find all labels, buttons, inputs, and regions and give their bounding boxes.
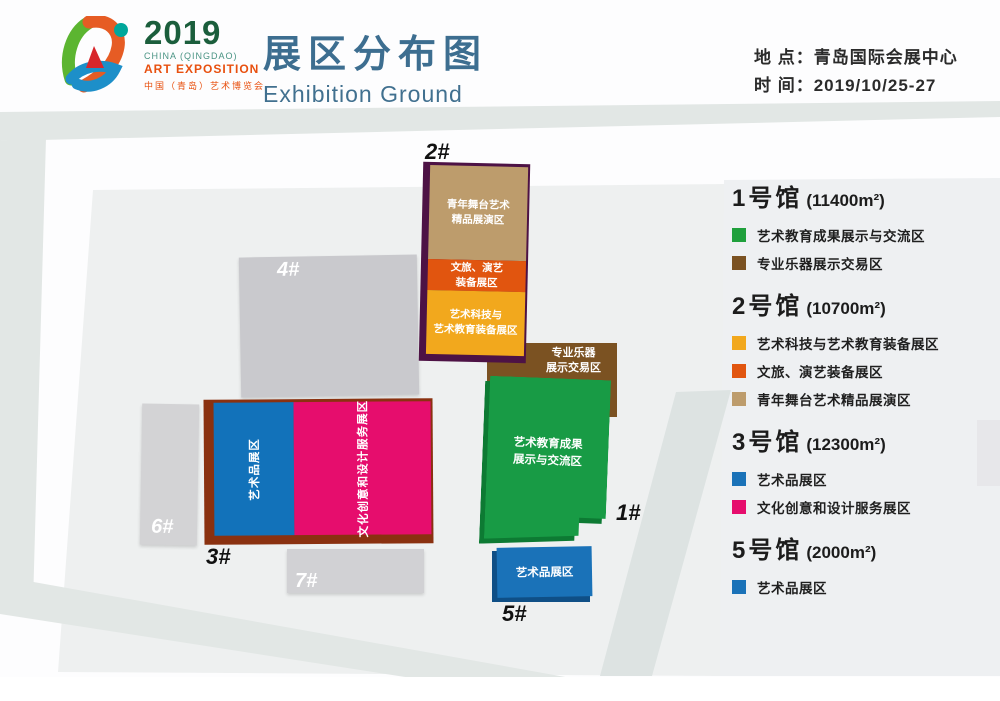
legend-item: 艺术品展区 — [732, 578, 994, 596]
legend-item: 艺术科技与艺术教育装备展区 — [732, 334, 994, 352]
legend-hall-1-title: 1号馆(11400m²) — [732, 184, 994, 216]
logo-year: 2019 — [144, 16, 265, 50]
hall-4-building: 4# — [239, 254, 419, 397]
hall-1-zone-label: 艺术教育成果 展示与交流区 — [487, 434, 609, 473]
hall-3-zone-creative-design-label: 文化创意和设计服务展区 — [354, 399, 371, 537]
blue-swatch-icon — [732, 472, 746, 486]
hall-2-zone-art-tech: 艺术科技与 艺术教育装备展区 — [426, 290, 525, 356]
hall-6-building: 6# — [140, 404, 199, 546]
legend-item: 文旅、演艺装备展区 — [732, 362, 994, 380]
hall-5-zone-label: 艺术品展区 — [516, 563, 574, 580]
event-time: 时 间：2019/10/25-27 — [754, 72, 958, 100]
hall-3-zone-artworks: 艺术品展区 — [214, 402, 294, 536]
hall-2-zone-culture-tourism-label: 文旅、演艺 装备展区 — [450, 260, 503, 291]
hall-3-zone-creative-design: 文化创意和设计服务展区 — [293, 401, 431, 535]
legend-item: 艺术品展区 — [732, 470, 994, 488]
legend-item: 艺术教育成果展示与交流区 — [732, 226, 994, 244]
yellow-swatch-icon — [732, 336, 746, 350]
hall-2-zone-art-tech-label: 艺术科技与 艺术教育装备展区 — [433, 307, 518, 338]
legend-hall-5-area: (2000m²) — [806, 543, 876, 562]
legend-hall-2-name: 2号馆 — [732, 293, 802, 320]
legend-item-label: 艺术教育成果展示与交流区 — [757, 225, 925, 245]
legend-hall-2-title: 2号馆(10700m²) — [732, 292, 994, 324]
legend-hall-1: 1号馆(11400m²) 艺术教育成果展示与交流区 专业乐器展示交易区 — [732, 184, 994, 272]
legend: 1号馆(11400m²) 艺术教育成果展示与交流区 专业乐器展示交易区 2号馆(… — [732, 184, 994, 616]
blue-swatch-icon — [732, 580, 746, 594]
hall-4-label: 4# — [277, 259, 300, 282]
orange-swatch-icon — [732, 364, 746, 378]
legend-hall-2-area: (10700m²) — [806, 299, 885, 318]
legend-hall-5-name: 5号馆 — [732, 537, 802, 564]
hall-1-building: 艺术教育成果 展示与交流区 — [484, 376, 611, 544]
legend-hall-5-title: 5号馆(2000m²) — [732, 536, 994, 568]
page-title-cn: 展区分布图 — [263, 33, 488, 77]
hall-2-zone-youth-stage: 青年舞台艺术 精品展演区 — [428, 165, 528, 261]
legend-hall-3-title: 3号馆(12300m²) — [732, 428, 994, 460]
pink-swatch-icon — [732, 500, 746, 514]
legend-item-label: 专业乐器展示交易区 — [757, 253, 883, 273]
hall-7-building: 7# — [287, 549, 424, 593]
hall-3-label: 3# — [206, 544, 230, 570]
legend-hall-1-name: 1号馆 — [732, 185, 802, 212]
logo-subtitle-en2: ART EXPOSITION — [144, 62, 265, 76]
legend-hall-1-area: (11400m²) — [806, 191, 884, 210]
hall-1-label: 1# — [616, 500, 640, 526]
expo-logo-mark-icon — [58, 16, 136, 100]
legend-hall-3-area: (12300m²) — [806, 435, 885, 454]
logo-subtitle-cn: 中国（青岛）艺术博览会 — [144, 79, 265, 92]
hall-2-zone-culture-tourism: 文旅、演艺 装备展区 — [427, 259, 526, 292]
hall-2-zone-youth-stage-label: 青年舞台艺术 精品展演区 — [446, 198, 510, 229]
hall-6-label: 6# — [151, 516, 174, 539]
page-title: 展区分布图 Exhibition Ground — [263, 33, 488, 108]
legend-item-label: 青年舞台艺术精品展演区 — [757, 389, 911, 409]
hall-2-label: 2# — [425, 139, 449, 165]
green-swatch-icon — [732, 228, 746, 242]
legend-item-label: 艺术科技与艺术教育装备展区 — [757, 333, 939, 353]
tan-swatch-icon — [732, 392, 746, 406]
legend-hall-5: 5号馆(2000m²) 艺术品展区 — [732, 536, 994, 596]
hall-2-building: 青年舞台艺术 精品展演区 文旅、演艺 装备展区 艺术科技与 艺术教育装备展区 — [419, 162, 530, 363]
legend-item-label: 文化创意和设计服务展区 — [757, 497, 911, 517]
legend-item-label: 艺术品展区 — [757, 577, 827, 597]
event-info: 地 点：青岛国际会展中心 时 间：2019/10/25-27 — [754, 44, 958, 100]
event-location: 地 点：青岛国际会展中心 — [754, 44, 958, 72]
legend-item: 专业乐器展示交易区 — [732, 254, 994, 272]
exhibition-ground-poster: 2019 CHINA (QINGDAO) ART EXPOSITION 中国（青… — [0, 0, 1000, 701]
legend-hall-2: 2号馆(10700m²) 艺术科技与艺术教育装备展区 文旅、演艺装备展区 青年舞… — [732, 292, 994, 408]
legend-hall-3: 3号馆(12300m²) 艺术品展区 文化创意和设计服务展区 — [732, 428, 994, 516]
expo-logo-text: 2019 CHINA (QINGDAO) ART EXPOSITION 中国（青… — [144, 16, 265, 92]
instruments-zone-label: 专业乐器 展示交易区 — [546, 346, 601, 377]
hall-5-label: 5# — [502, 601, 526, 627]
legend-item: 青年舞台艺术精品展演区 — [732, 390, 994, 408]
legend-item: 文化创意和设计服务展区 — [732, 498, 994, 516]
brown-swatch-icon — [732, 256, 746, 270]
legend-item-label: 文旅、演艺装备展区 — [757, 361, 883, 381]
page-title-en: Exhibition Ground — [263, 81, 488, 108]
expo-logo: 2019 CHINA (QINGDAO) ART EXPOSITION 中国（青… — [58, 16, 265, 100]
hall-3-zone-artworks-label: 艺术品展区 — [246, 438, 262, 501]
legend-item-label: 艺术品展区 — [757, 469, 827, 489]
legend-hall-3-name: 3号馆 — [732, 429, 802, 456]
hall-5-building: 艺术品展区 — [497, 546, 593, 598]
hall-3-building: 艺术品展区 文化创意和设计服务展区 — [203, 398, 433, 545]
logo-subtitle-en1: CHINA (QINGDAO) — [144, 51, 265, 61]
hall-7-label: 7# — [295, 570, 317, 593]
